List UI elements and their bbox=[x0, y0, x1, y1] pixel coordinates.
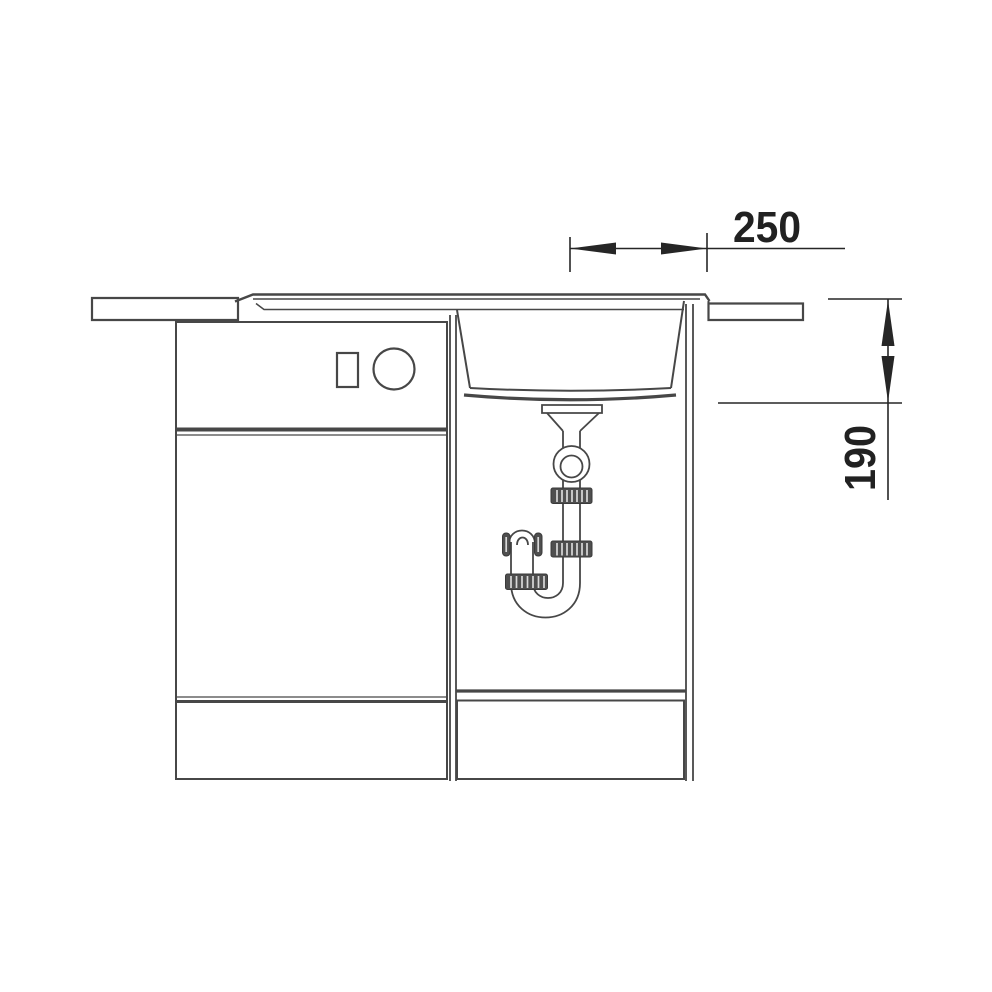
dimension-vertical: 190 bbox=[718, 299, 902, 500]
left-base-cabinet bbox=[176, 322, 447, 779]
compression-nut-middle bbox=[551, 541, 592, 557]
dimension-label-190: 190 bbox=[836, 425, 885, 491]
technical-diagram-svg: 250 190 bbox=[0, 0, 992, 992]
drain-flange bbox=[542, 405, 602, 431]
trap-outlet-cap bbox=[503, 531, 543, 557]
right-cabinet-drawer bbox=[457, 701, 684, 780]
left-countertop bbox=[92, 298, 238, 320]
arrow-left-icon bbox=[570, 243, 616, 255]
dimension-label-250: 250 bbox=[733, 203, 801, 252]
ball-joint bbox=[554, 446, 590, 482]
right-countertop bbox=[709, 304, 804, 321]
sink-drainboard bbox=[235, 295, 710, 321]
control-knob bbox=[374, 349, 415, 390]
compression-nut-upper bbox=[551, 488, 592, 504]
dimension-horizontal: 250 bbox=[570, 203, 845, 272]
arrow-down-icon bbox=[882, 356, 895, 402]
arrow-right-icon bbox=[661, 243, 707, 255]
arrow-up-icon bbox=[882, 300, 895, 346]
sink-installation-diagram: 250 190 bbox=[0, 0, 992, 992]
sink-bowl bbox=[457, 301, 684, 400]
control-button bbox=[337, 353, 358, 387]
compression-nut-lower bbox=[506, 574, 548, 590]
